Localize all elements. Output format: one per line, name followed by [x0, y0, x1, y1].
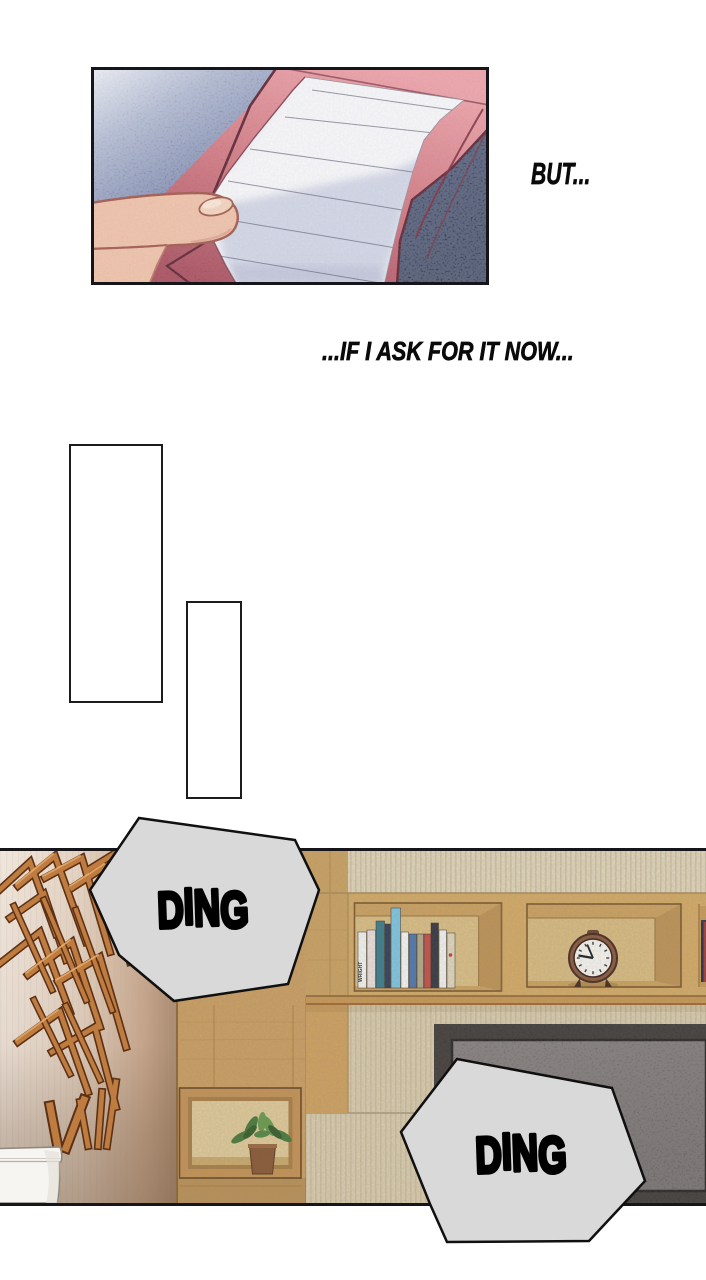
svg-text:DING: DING	[156, 877, 249, 942]
svg-text:DING: DING	[474, 1122, 567, 1187]
